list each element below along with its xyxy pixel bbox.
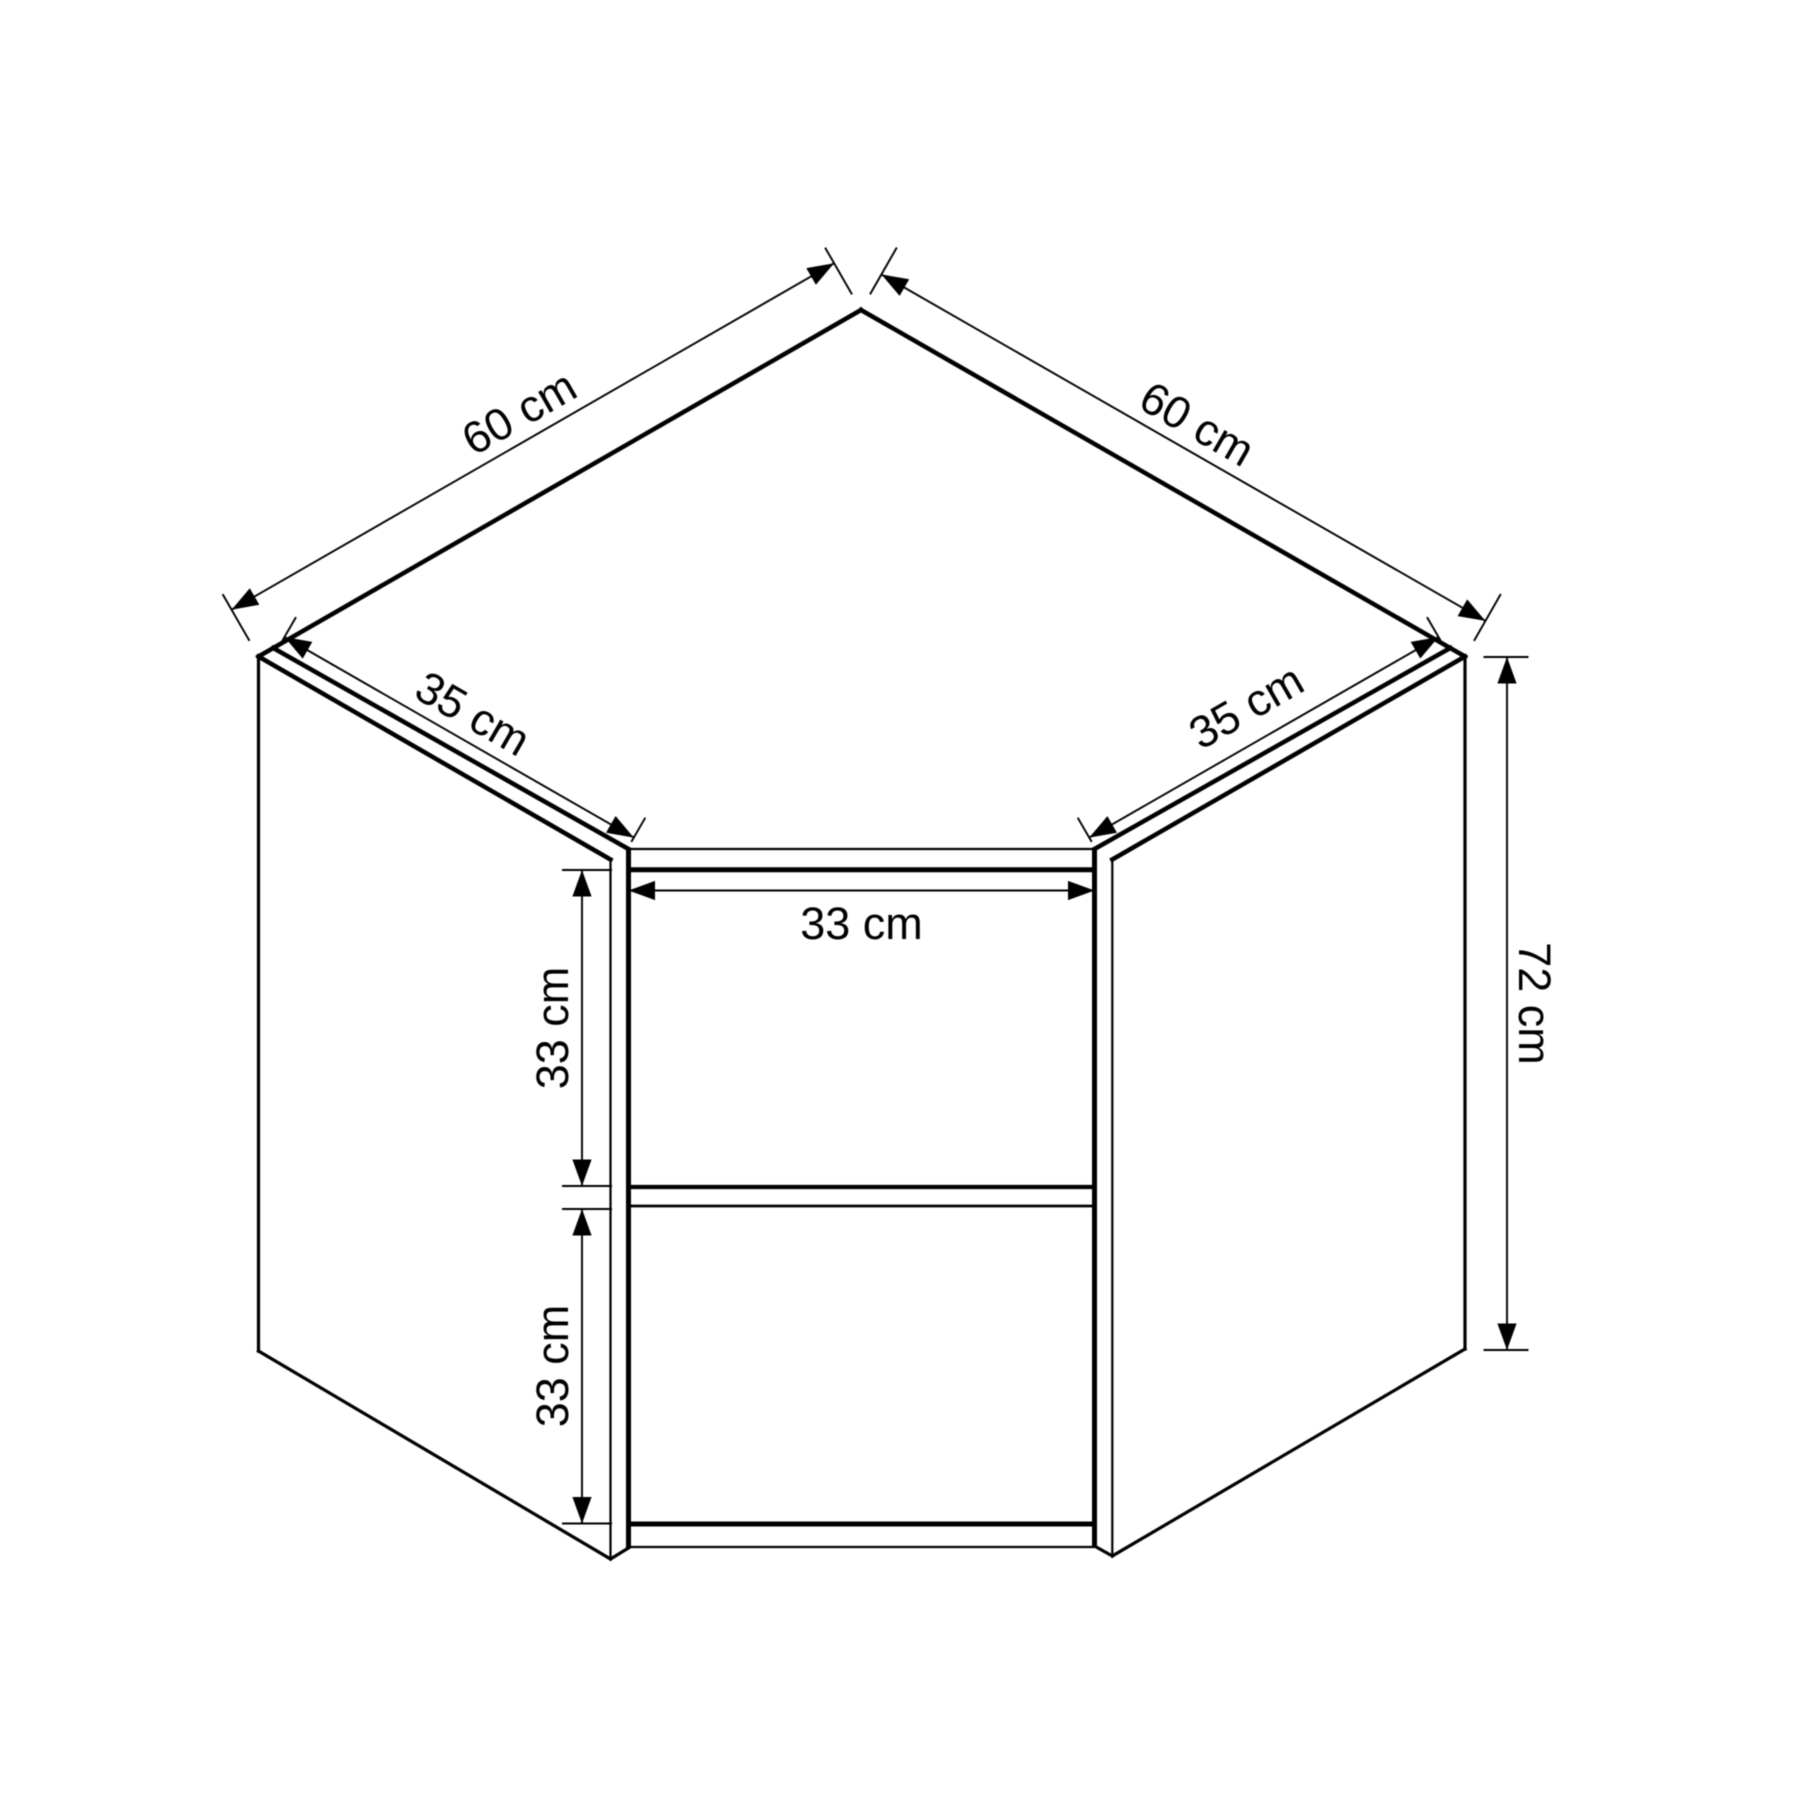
svg-text:72 cm: 72 cm [1509, 942, 1560, 1065]
svg-text:33 cm: 33 cm [527, 967, 578, 1090]
svg-text:33 cm: 33 cm [800, 898, 923, 949]
svg-text:33 cm: 33 cm [527, 1305, 578, 1428]
